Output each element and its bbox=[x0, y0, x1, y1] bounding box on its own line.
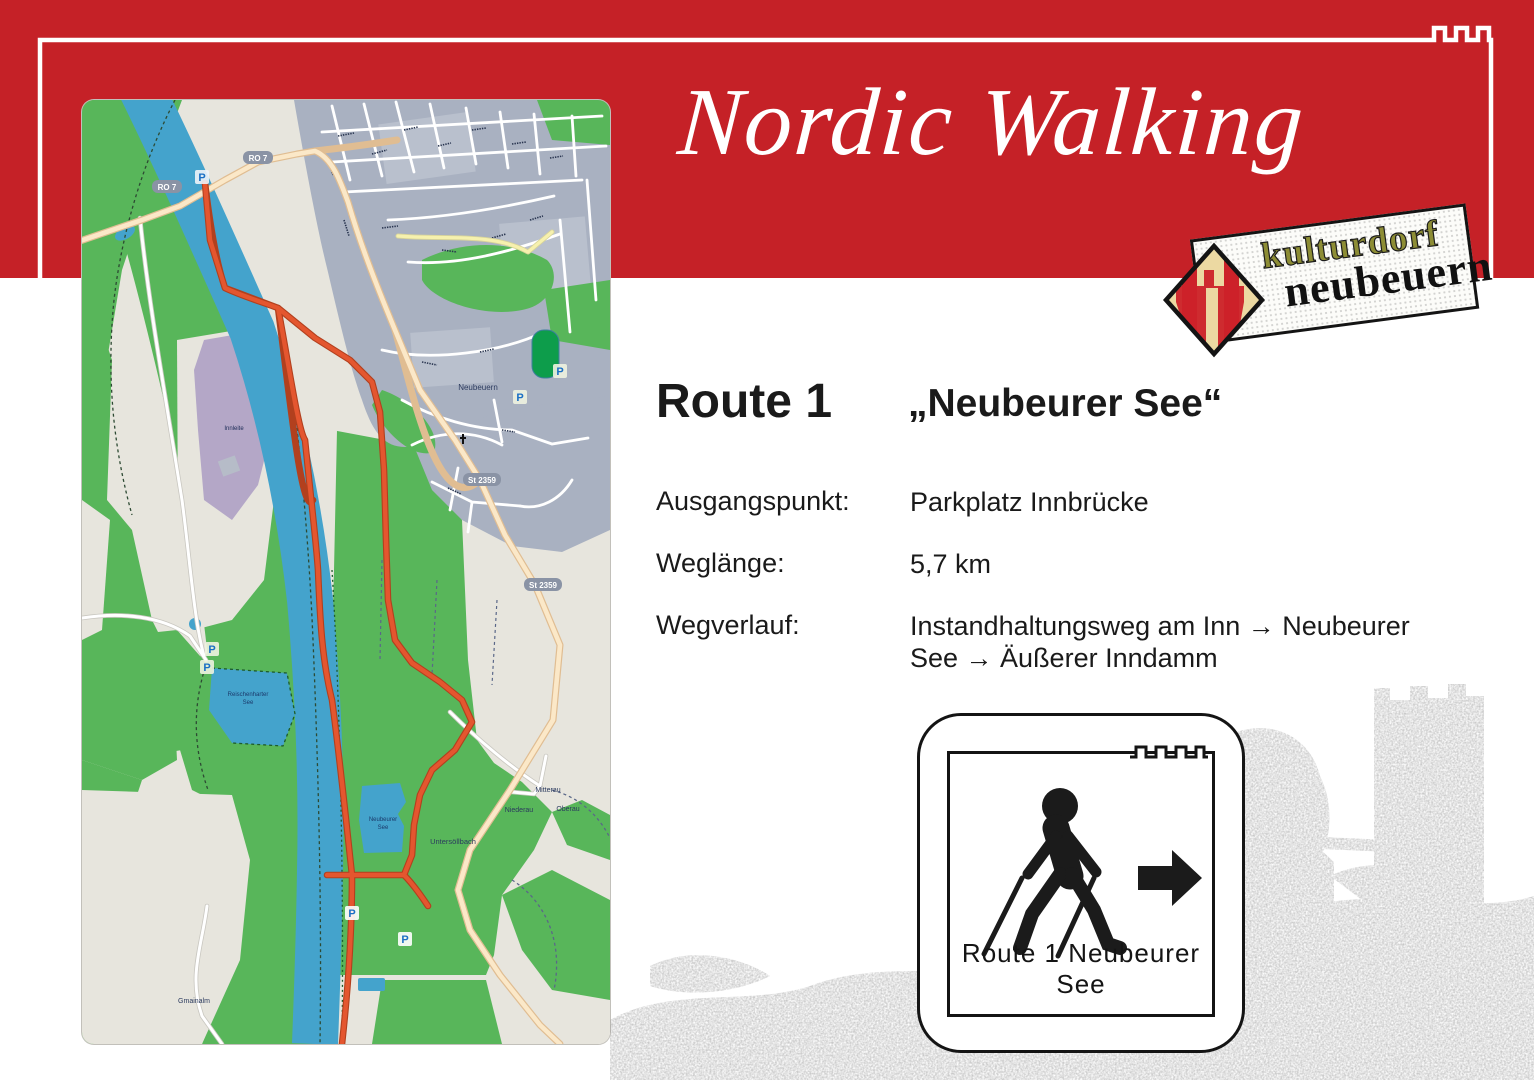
svg-text:St 2359: St 2359 bbox=[529, 581, 558, 590]
field-label-ausgangspunkt: Ausgangspunkt: bbox=[656, 486, 850, 517]
svg-text:P: P bbox=[556, 366, 563, 378]
svg-text:P: P bbox=[203, 662, 210, 674]
map-label-gmainalm: Gmainalm bbox=[178, 998, 210, 1005]
map-label-oberau: Oberau bbox=[556, 806, 579, 813]
page-title: Nordic Walking bbox=[624, 66, 1355, 226]
kulturdorf-neubeuern-logo: kulturdorf neubeuern bbox=[1162, 218, 1492, 378]
map-label-mitterau: Mitterau bbox=[535, 787, 560, 794]
map-label-neubeuern: Neubeuern bbox=[458, 383, 498, 392]
flyer-page: Nordic Walking kulturdorf neubeuern bbox=[0, 0, 1534, 1080]
svg-text:See: See bbox=[243, 700, 254, 706]
castle-crest-icon bbox=[1162, 242, 1266, 358]
route-name: „Neubeurer See“ bbox=[908, 382, 1222, 426]
sign-crenellation-icon bbox=[1130, 742, 1208, 762]
map-label-reischenharter: Reischenharter bbox=[228, 692, 269, 698]
field-label-weglaenge: Weglänge: bbox=[656, 548, 785, 579]
route-map: P P P P P P P RO 7 RO 7 St bbox=[82, 100, 610, 1044]
route-sign: Route 1 Neubeurer See bbox=[917, 713, 1245, 1053]
right-arrow-icon bbox=[1138, 850, 1202, 906]
route-sign-inner-frame: Route 1 Neubeurer See bbox=[947, 751, 1215, 1017]
field-value-wegverlauf: Instandhaltungsweg am Inn → Neubeurer Se… bbox=[910, 610, 1430, 674]
svg-text:St 2359: St 2359 bbox=[468, 476, 497, 485]
route-sign-caption: Route 1 Neubeurer See bbox=[950, 938, 1212, 1000]
svg-text:P: P bbox=[401, 934, 408, 946]
field-value-ausgangspunkt: Parkplatz Innbrücke bbox=[910, 486, 1430, 518]
map-canvas: P P P P P P P RO 7 RO 7 St bbox=[82, 100, 610, 1044]
svg-text:P: P bbox=[348, 908, 355, 920]
svg-text:P: P bbox=[198, 172, 205, 184]
field-label-wegverlauf: Wegverlauf: bbox=[656, 610, 800, 641]
svg-text:RO 7: RO 7 bbox=[158, 183, 177, 192]
field-value-weglaenge: 5,7 km bbox=[910, 548, 1430, 580]
svg-text:RO 7: RO 7 bbox=[249, 154, 268, 163]
map-label-innleite: Innleite bbox=[224, 426, 244, 432]
map-label-untersoellbach: Untersöllbach bbox=[430, 837, 476, 846]
map-label-niederau: Niederau bbox=[505, 807, 534, 814]
svg-text:See: See bbox=[378, 825, 389, 831]
svg-text:P: P bbox=[516, 392, 523, 404]
svg-text:P: P bbox=[208, 644, 215, 656]
map-label-neubeurer-see: Neubeurer bbox=[369, 817, 397, 823]
route-heading: Route 1 bbox=[656, 374, 832, 429]
